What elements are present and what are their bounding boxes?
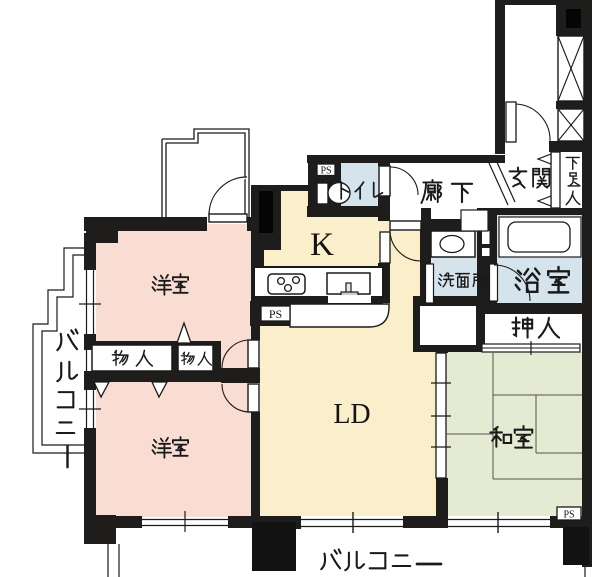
svg-text:PS: PS	[320, 166, 331, 177]
svg-text:PS: PS	[563, 510, 574, 521]
svg-text:K: K	[310, 227, 334, 263]
svg-text:LD: LD	[333, 399, 370, 430]
svg-text:PS: PS	[269, 307, 282, 321]
